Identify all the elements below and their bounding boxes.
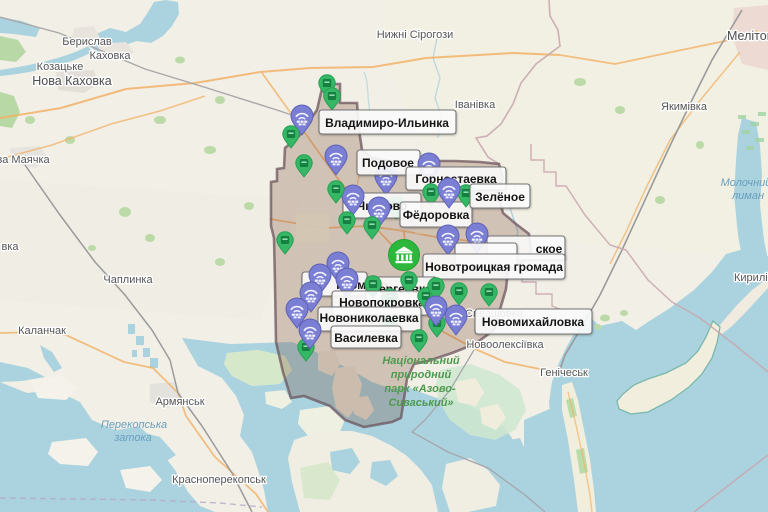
svg-text:Новоолексіївка: Новоолексіївка — [466, 339, 544, 351]
svg-text:Каланчак: Каланчак — [18, 325, 66, 337]
svg-text:Іванівка: Іванівка — [455, 99, 496, 111]
svg-text:Козацьке: Козацьке — [37, 61, 84, 73]
svg-text:Каховка: Каховка — [89, 50, 131, 62]
svg-text:Сиваський»: Сиваський» — [388, 397, 453, 409]
svg-text:Новотроицкая громада: Новотроицкая громада — [425, 260, 563, 274]
svg-text:Кирилівка: Кирилівка — [734, 272, 768, 284]
svg-text:Генічеськ: Генічеськ — [540, 367, 588, 379]
svg-text:Зелёное: Зелёное — [475, 190, 525, 204]
svg-text:Молочний: Молочний — [721, 177, 768, 189]
svg-text:Новониколаевка: Новониколаевка — [319, 311, 418, 325]
svg-text:Фёдоровка: Фёдоровка — [403, 208, 470, 222]
svg-text:Красноперекопськ: Красноперекопськ — [172, 474, 266, 486]
svg-text:Перекопська: Перекопська — [101, 419, 167, 431]
svg-text:затока: затока — [113, 432, 152, 444]
svg-text:Нижні Сірогози: Нижні Сірогози — [377, 29, 454, 41]
svg-text:лиман: лиман — [731, 190, 764, 202]
svg-text:ова Маячка: ова Маячка — [0, 154, 51, 166]
svg-text:парк «Азово-: парк «Азово- — [384, 383, 456, 395]
svg-text:Армянськ: Армянськ — [155, 396, 204, 408]
svg-text:Чаплинка: Чаплинка — [103, 274, 153, 286]
svg-text:Василевка: Василевка — [334, 331, 398, 345]
svg-text:Новомихайловка: Новомихайловка — [482, 315, 585, 329]
svg-text:Якимівка: Якимівка — [661, 101, 708, 113]
svg-text:Берислав: Берислав — [62, 36, 112, 48]
svg-text:Мелітополь: Мелітополь — [727, 29, 768, 43]
svg-text:Національний: Національний — [382, 355, 460, 367]
svg-text:Владимиро-Ильинка: Владимиро-Ильинка — [325, 116, 449, 130]
svg-text:природний: природний — [391, 369, 452, 381]
svg-text:вка: вка — [1, 241, 19, 253]
svg-text:Нова Каховка: Нова Каховка — [32, 74, 112, 88]
